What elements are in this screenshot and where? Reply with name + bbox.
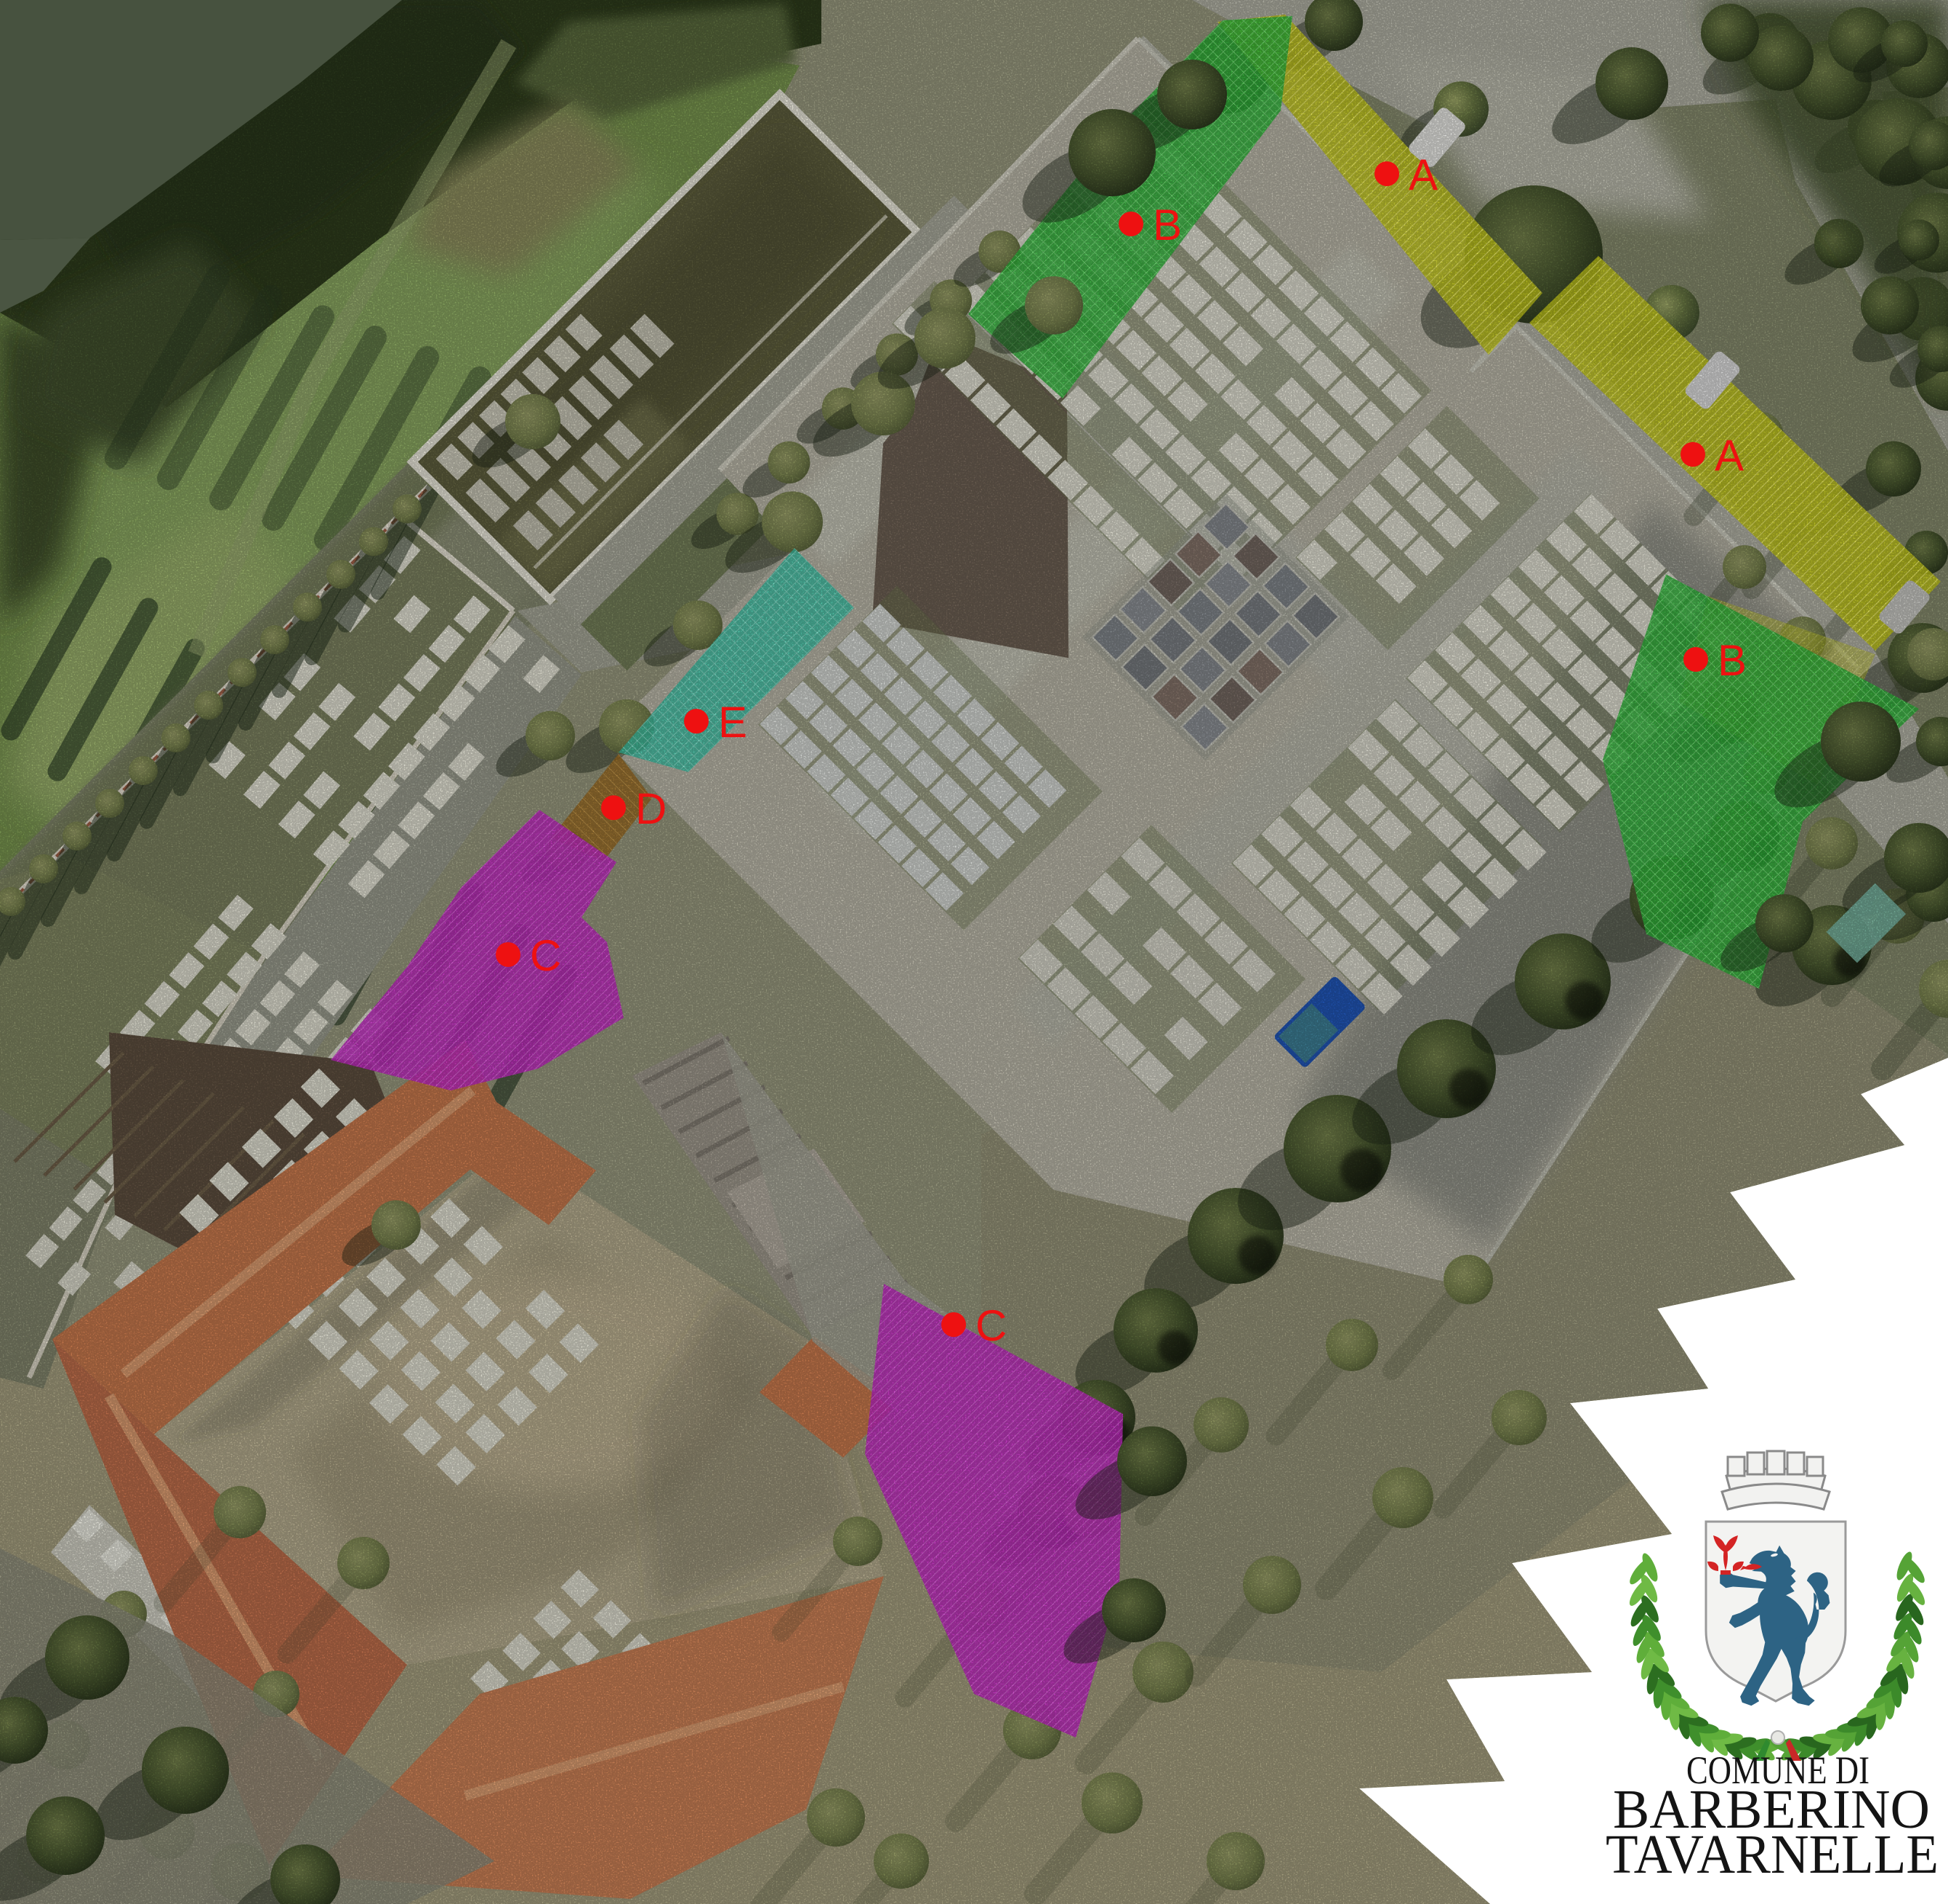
svg-text:C: C	[975, 1301, 1007, 1350]
svg-text:A: A	[1715, 431, 1744, 480]
svg-text:A: A	[1409, 150, 1438, 199]
svg-text:C: C	[530, 931, 561, 980]
svg-text:B: B	[1153, 201, 1182, 249]
svg-text:TAVARNELLE: TAVARNELLE	[1606, 1824, 1939, 1885]
svg-text:B: B	[1718, 636, 1747, 685]
svg-text:E: E	[718, 698, 747, 747]
svg-text:D: D	[635, 784, 667, 833]
